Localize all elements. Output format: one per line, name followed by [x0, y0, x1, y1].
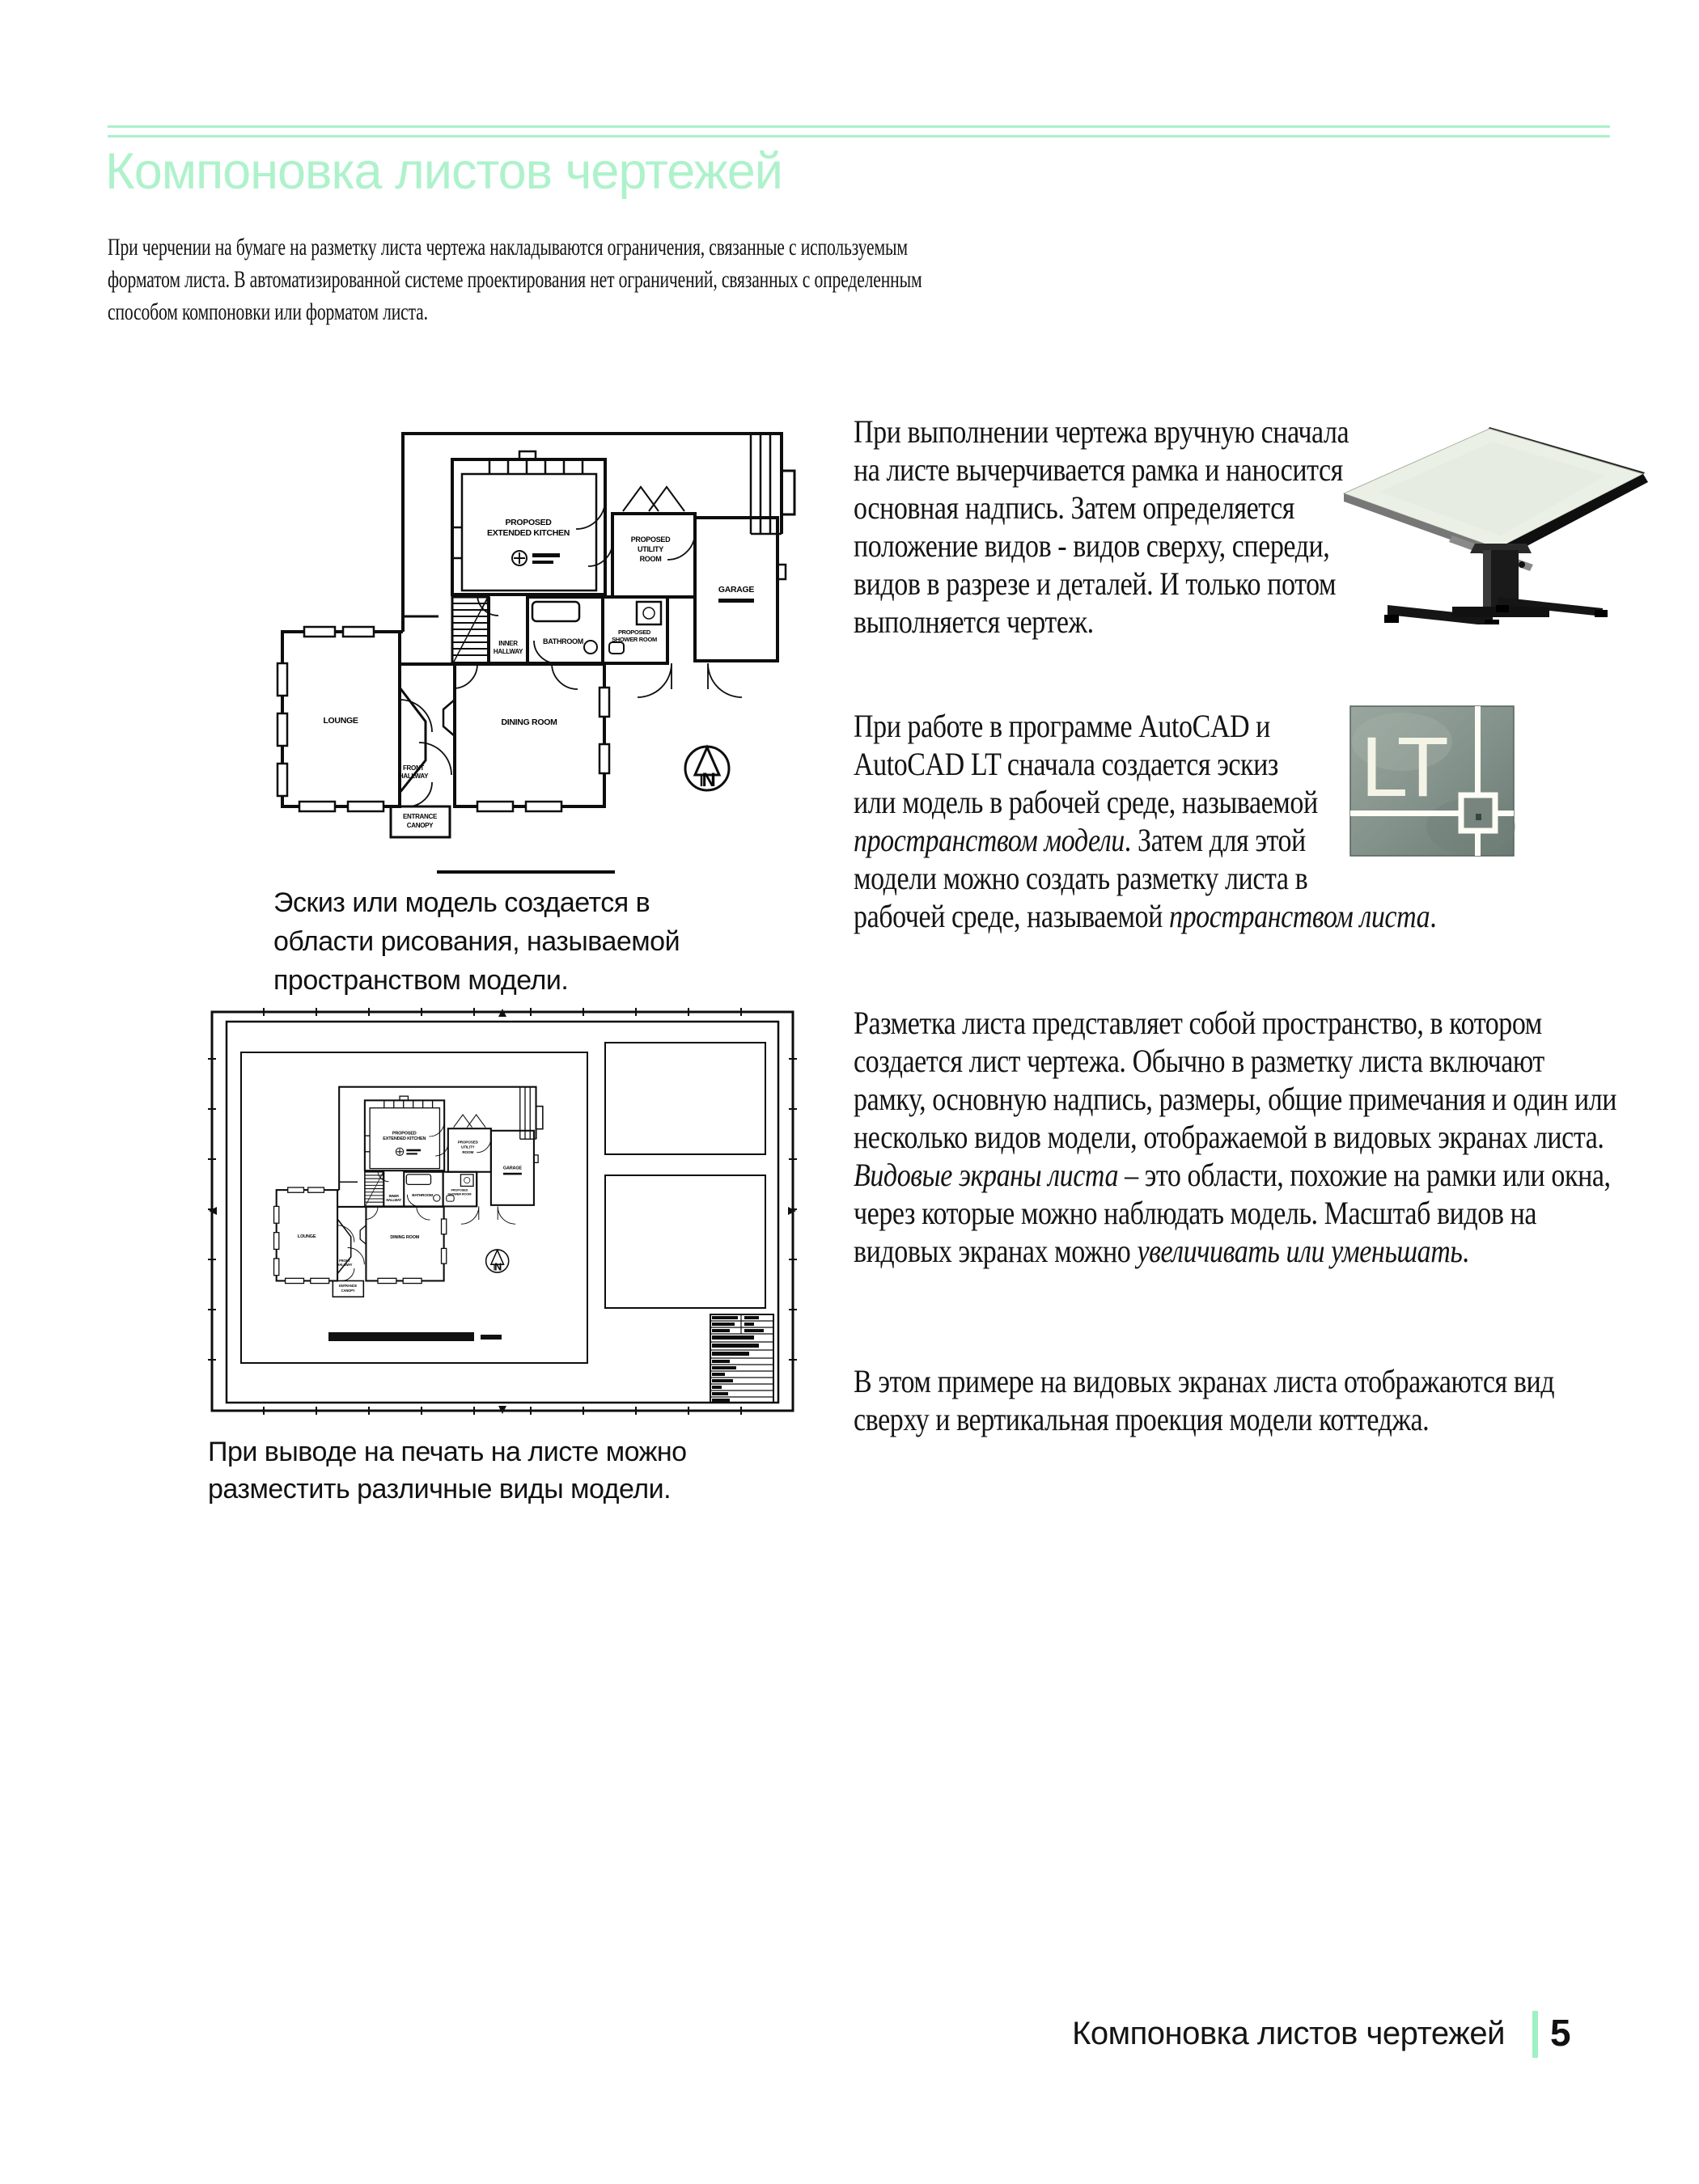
para-layout-description: Разметка листа представляет собой простр… [854, 1004, 1618, 1270]
north-compass: N [685, 747, 729, 791]
front-hallway-label: FRONT [403, 764, 424, 772]
empty-viewport-top [605, 1043, 765, 1154]
footer-divider-bar [1532, 2011, 1538, 2058]
empty-viewport-bottom [605, 1175, 765, 1308]
figure-ground-line [437, 870, 615, 874]
layout-caption: При выводе на печать на листе можно разм… [208, 1433, 726, 1508]
garage-label: GARAGE [718, 585, 755, 595]
page-title: Компоновка листов чертежей [105, 142, 1238, 201]
layout-sheet-drawing [208, 1008, 797, 1415]
canopy-label-2: CANOPY [407, 822, 434, 829]
kitchen-label-2: EXTENDED KITCHEN [487, 528, 570, 538]
utility-label-2: UTILITY [638, 545, 663, 553]
term-paper-space: пространством листа [1169, 898, 1430, 934]
shower-label: PROPOSED [618, 629, 651, 636]
shower-label-2: SHOWER ROOM [612, 636, 657, 643]
drafting-table [1344, 427, 1648, 624]
para-manual-drafting: При выполнении чертежа вручную сначала н… [854, 413, 1356, 641]
utility-label-3: ROOM [640, 555, 662, 563]
dining-room [443, 664, 609, 811]
lt-badge: LT [1350, 706, 1515, 856]
footer-page-number: 5 [1550, 2011, 1607, 2055]
model-space-floor-plan: N PROPOSED EXTENDED KITCHEN PROPOSED UTI… [235, 404, 801, 874]
front-hallway-label-2: HALLWAY [399, 772, 429, 780]
layout-sheet-figure [207, 1007, 798, 1416]
canopy-label: ENTRANCE [403, 813, 438, 820]
para-autocad-segment: При работе в программе AutoCAD и AutoCAD… [854, 708, 1318, 820]
kitchen-label: PROPOSED [505, 518, 552, 527]
footer-section-title: Компоновка листов чертежей [890, 2016, 1505, 2052]
dining-label: DINING ROOM [501, 717, 557, 727]
para-autocad-segment: . [1430, 898, 1436, 934]
term-zoom-in-out: увеличивать или уменьшать [1137, 1233, 1462, 1269]
header-rule-top [108, 125, 1610, 128]
sheet-inner-border [227, 1022, 778, 1403]
sheet-outer-border [212, 1012, 793, 1411]
north-letter: N [701, 769, 715, 791]
drafting-table-photo [1331, 414, 1655, 624]
bathroom-room [527, 597, 603, 663]
para-layout-segment: Разметка листа представляет собой простр… [854, 1005, 1616, 1155]
lounge-label: LOUNGE [323, 716, 358, 726]
para-example: В этом примере на видовых экранах листа … [854, 1362, 1618, 1438]
inner-hallway-label-2: HALLWAY [494, 648, 523, 655]
utility-label: PROPOSED [631, 535, 671, 544]
header-rule-bottom [108, 135, 1610, 138]
inner-hallway-label: INNER [498, 640, 518, 647]
bathroom-label: BATHROOM [543, 637, 583, 645]
book-page: Компоновка листов чертежей При черчении … [0, 0, 1699, 2184]
plan-view-in-viewport [274, 1087, 543, 1297]
stairs [452, 597, 489, 663]
model-space-caption: Эскиз или модель создается в области рис… [273, 883, 727, 1000]
intro-paragraph: При черчении на бумаге на разметку листа… [108, 231, 923, 328]
viewport-title-bar [328, 1332, 502, 1341]
sheet-tick-marks [208, 1008, 797, 1415]
autocad-lt-badge: LT [1349, 705, 1515, 857]
title-block [710, 1314, 773, 1403]
term-model-space: пространством модели [854, 822, 1125, 858]
floor-plan-drawing: N PROPOSED EXTENDED KITCHEN PROPOSED UTI… [278, 434, 794, 837]
lt-badge-letters: LT [1361, 720, 1447, 815]
term-layout-viewports: Видовые экраны листа [854, 1157, 1118, 1193]
lt-pickbox [1461, 795, 1495, 831]
para-layout-segment: . [1462, 1233, 1468, 1269]
